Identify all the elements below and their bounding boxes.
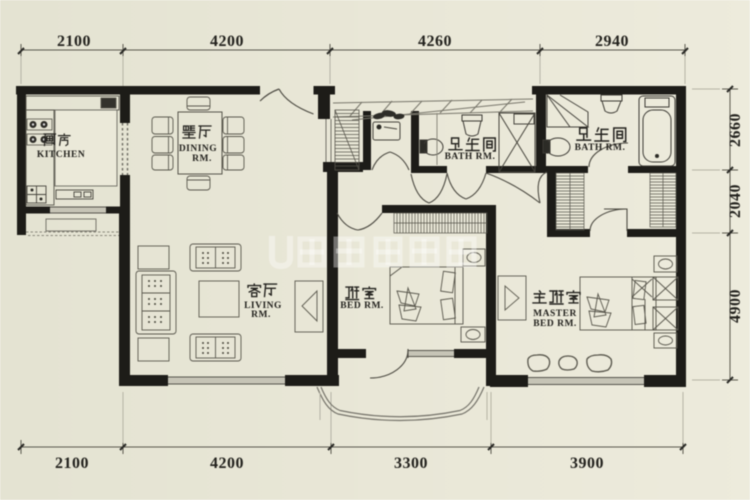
svg-text:2100: 2100 [57,33,91,50]
svg-text:KITCHEN: KITCHEN [37,150,85,160]
svg-text:BED RM.: BED RM. [533,319,577,329]
svg-text:4260: 4260 [418,33,452,50]
svg-text:3900: 3900 [570,455,604,472]
svg-text:RM.: RM. [192,154,212,164]
svg-text:4200: 4200 [210,455,244,472]
svg-text:BATH RM.: BATH RM. [575,143,626,153]
svg-text:3300: 3300 [394,455,428,472]
svg-text:RM.: RM. [251,310,271,320]
svg-text:4200: 4200 [210,33,244,50]
svg-text:2660: 2660 [727,113,744,147]
svg-text:BED RM.: BED RM. [340,301,384,311]
svg-text:2040: 2040 [727,184,744,218]
svg-text:2100: 2100 [55,455,89,472]
svg-text:2940: 2940 [595,33,629,50]
svg-text:DINING: DINING [179,144,217,154]
svg-text:4900: 4900 [727,289,744,323]
svg-text:BATH RM.: BATH RM. [445,152,496,162]
svg-text:MASTER: MASTER [533,309,577,319]
